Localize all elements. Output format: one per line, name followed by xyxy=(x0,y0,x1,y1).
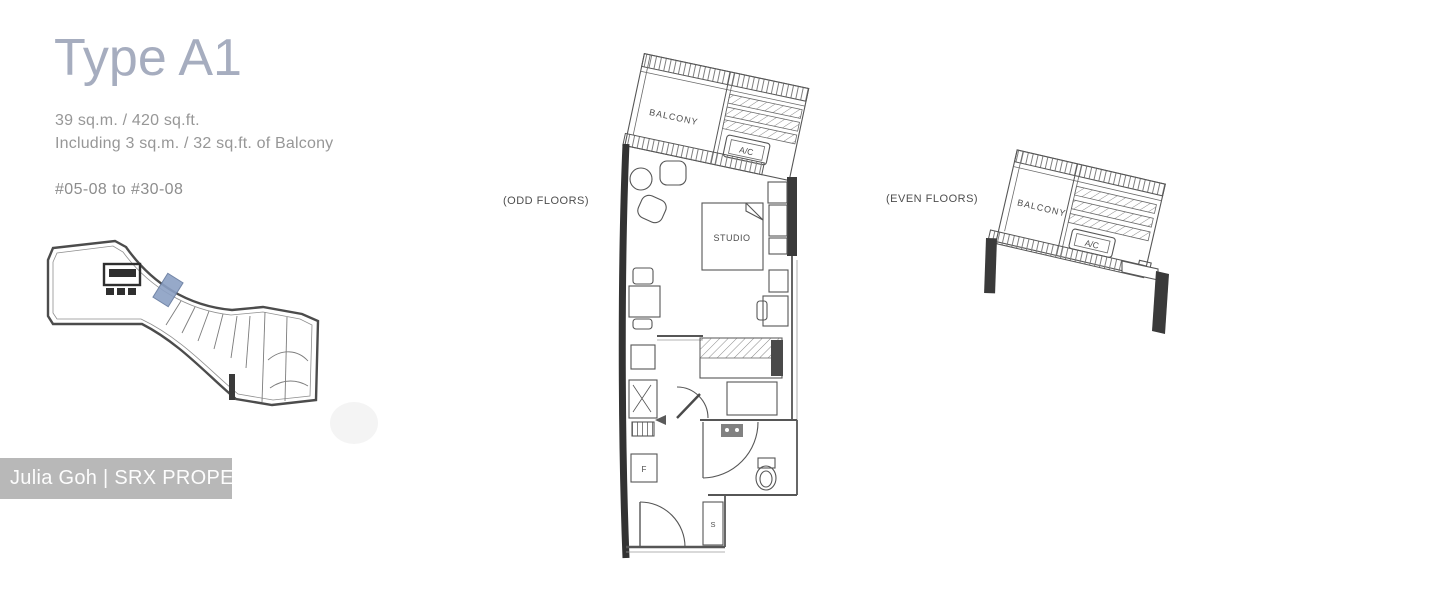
vanity-basin xyxy=(721,424,743,437)
plan-type-title: Type A1 xyxy=(54,28,242,88)
bathroom xyxy=(700,420,797,495)
shoe-cabinet-label: S xyxy=(710,520,715,529)
balcony-label: BALCONY xyxy=(648,107,699,127)
stool xyxy=(660,161,686,185)
even-balcony-block: A/C BALCONY xyxy=(988,148,1169,278)
floorplan-page: { "header": { "title": "Type A1", "area_… xyxy=(0,0,1440,603)
lounge-chair xyxy=(635,193,669,226)
agent-watermark: Julia Goh | SRX PROPERTY xyxy=(0,458,232,499)
odd-floors-caption: (ODD FLOORS) xyxy=(503,195,589,207)
fridge-label: F xyxy=(642,465,647,474)
studio-label: STUDIO xyxy=(713,233,750,243)
key-plan-core-bar-2 xyxy=(229,374,235,400)
bed: STUDIO xyxy=(702,203,763,270)
kitchen-left-cabinets xyxy=(629,345,657,436)
kitchen-counter xyxy=(700,338,783,378)
right-wall-stub xyxy=(1152,271,1169,334)
key-plan-core-bar xyxy=(109,269,136,277)
faint-smudge xyxy=(330,402,378,444)
wardrobe-column xyxy=(768,182,788,292)
left-wall-stub xyxy=(984,238,997,293)
shoe-cabinet: S xyxy=(703,502,723,545)
left-structural-wall xyxy=(622,144,626,558)
fridge: F xyxy=(631,454,657,482)
odd-balcony-block: A/C BALCONY xyxy=(623,53,809,180)
key-plan-outline xyxy=(48,241,318,405)
balcony-size-line: Including 3 sq.m. / 32 sq.ft. of Balcony xyxy=(55,135,333,153)
area-size-line: 39 sq.m. / 420 sq.ft. xyxy=(55,112,200,130)
right-structural-wall xyxy=(787,177,797,256)
balcony-label: BALCONY xyxy=(1016,197,1067,218)
even-floor-plan: A/C BALCONY xyxy=(940,130,1185,345)
dining-table xyxy=(629,286,660,317)
kitchen-island xyxy=(727,382,777,415)
dining-chair xyxy=(633,319,652,329)
key-plan xyxy=(40,228,340,413)
kitchen-sink xyxy=(771,340,783,376)
key-plan-highlighted-unit xyxy=(153,273,183,306)
key-plan-lift-2 xyxy=(117,288,125,295)
ac-label: A/C xyxy=(1084,238,1100,251)
key-plan-right-block-rooms xyxy=(262,312,308,402)
entry-door xyxy=(640,502,685,547)
toilet-bowl xyxy=(756,466,776,490)
desk-chair xyxy=(757,301,767,320)
round-table xyxy=(630,168,652,190)
key-plan-lift-3 xyxy=(128,288,136,295)
ac-label: A/C xyxy=(738,145,754,158)
unit-range-line: #05-08 to #30-08 xyxy=(55,181,183,199)
key-plan-lift-1 xyxy=(106,288,114,295)
dining-chair xyxy=(633,268,653,284)
bed-fold-corner xyxy=(746,203,763,220)
odd-floor-plan: A/C BALCONY STUDIO F xyxy=(595,30,825,575)
